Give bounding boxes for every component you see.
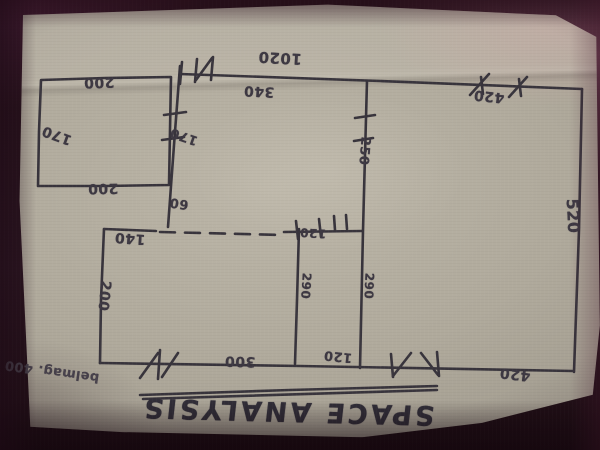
dim-bottom-left-room-bottom: 300 — [224, 352, 255, 369]
wall-dashed-opening — [160, 232, 282, 235]
wall-inner-right — [360, 81, 367, 368]
dim-right-side: 520 — [563, 198, 584, 234]
dim-left-room-top: 200 — [83, 73, 114, 90]
dim-mid-room-left-wall: 290 — [298, 272, 314, 299]
tick — [334, 216, 335, 230]
tick — [164, 112, 186, 115]
door-mark — [391, 354, 393, 377]
tick — [296, 221, 298, 239]
dim-mid-room-opening: 120 — [299, 225, 326, 241]
tick — [355, 115, 375, 118]
dim-top-mid-segment: 340 — [243, 82, 275, 100]
door-mark — [140, 353, 158, 378]
door-mark — [519, 79, 521, 96]
door-mark — [421, 353, 438, 375]
dim-mid-wall-stub: 60 — [169, 194, 190, 212]
dim-bottom-left-room-side: 200 — [94, 280, 113, 312]
photo-frame: 1020 200 170 200 340 420 170 60 250 520 … — [0, 0, 600, 450]
door-mark — [393, 353, 411, 376]
dim-overall-top: 1020 — [258, 48, 303, 68]
dim-left-room-bottom: 200 — [87, 180, 118, 197]
dim-mid-room-right-wall: 290 — [362, 272, 377, 299]
dim-mid-room-bottom: 120 — [323, 347, 353, 365]
tick — [346, 215, 347, 229]
dim-bottom-left-room-width: 140 — [114, 229, 146, 247]
dim-inner-wall-upper: 250 — [355, 136, 372, 166]
dim-top-right-segment: 420 — [473, 86, 505, 105]
door-mark — [196, 58, 212, 80]
